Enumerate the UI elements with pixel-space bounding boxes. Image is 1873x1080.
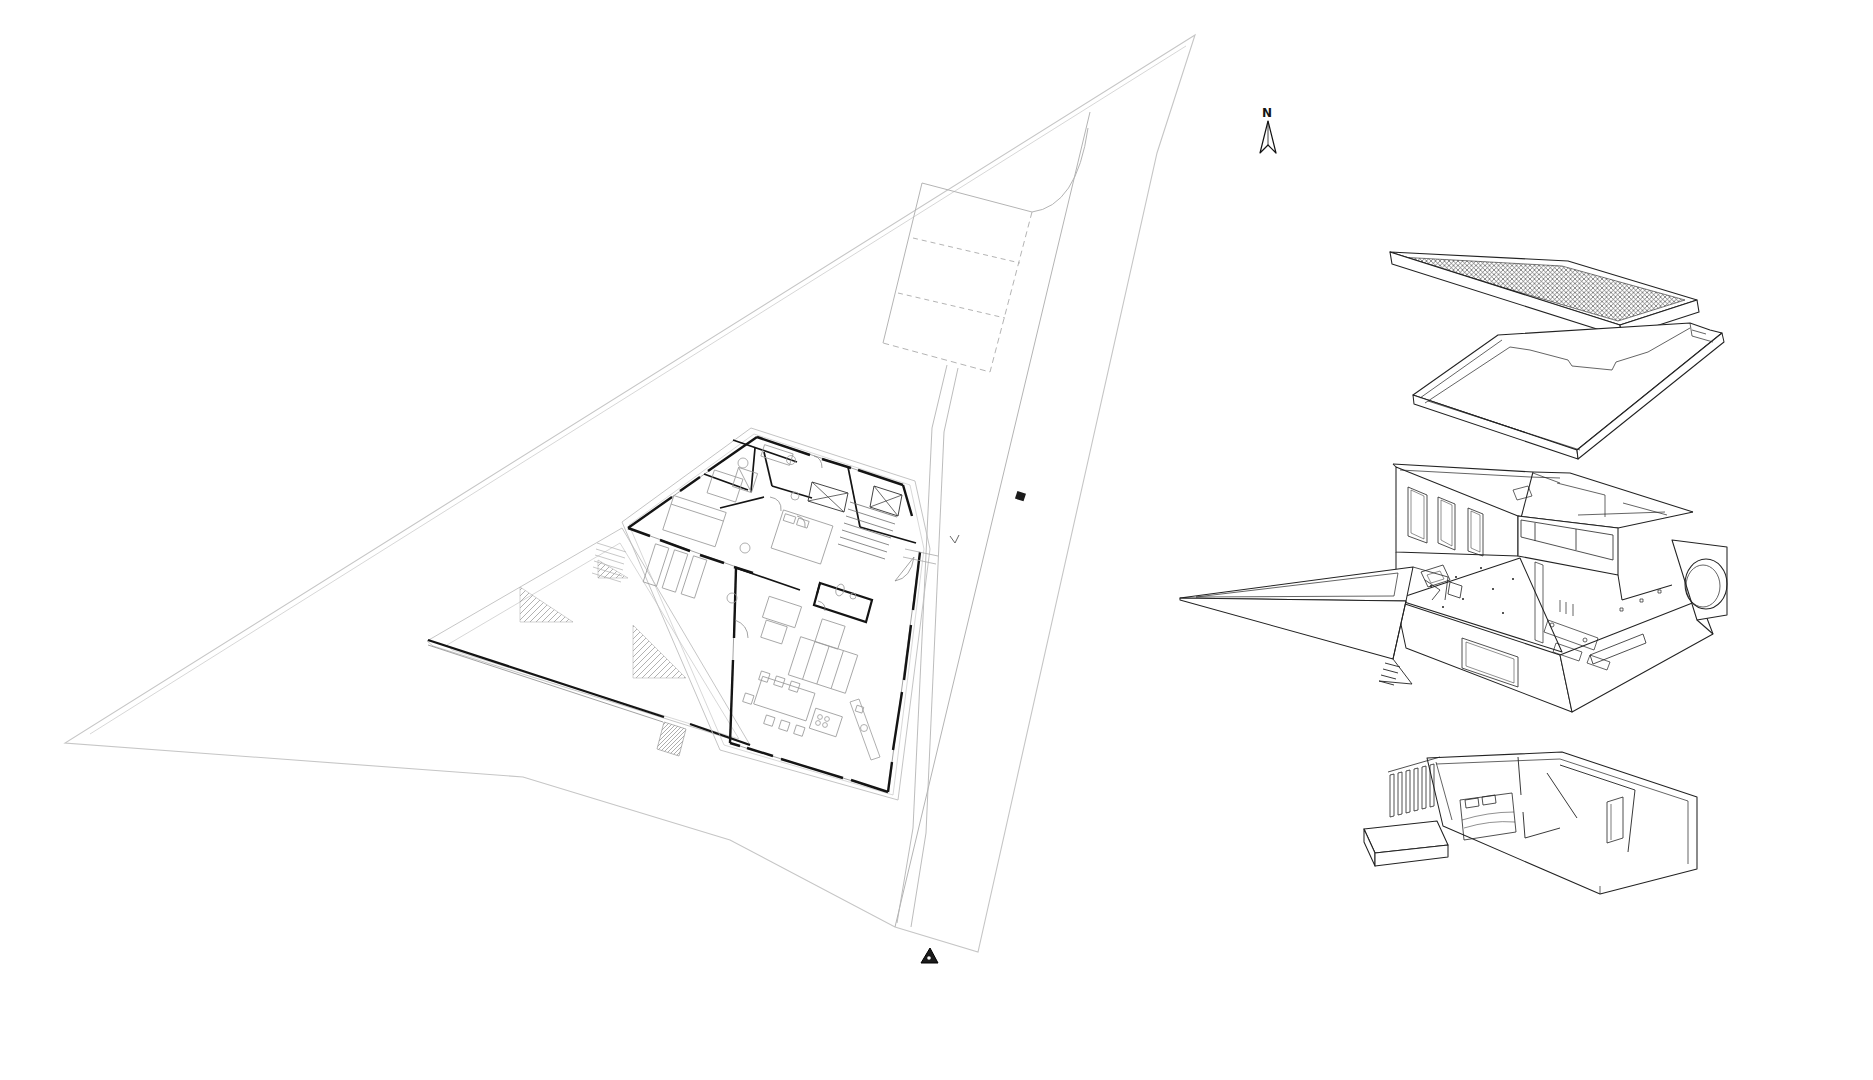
axon-roof-level	[1390, 252, 1699, 337]
driveway-edge-2	[911, 368, 958, 927]
basin-1	[738, 458, 748, 468]
parking-outline-dashed	[883, 212, 1032, 372]
axon-main-level	[1180, 464, 1727, 712]
axon-platform	[1364, 821, 1448, 866]
door-swings	[735, 456, 914, 638]
parking-divider-2	[898, 293, 1005, 318]
driveway-edge-1	[897, 365, 947, 923]
slope-chevron	[950, 535, 959, 543]
axon-entry-stairs	[1379, 659, 1412, 685]
stair	[808, 482, 902, 559]
furniture	[663, 445, 880, 760]
north-arrow: N	[1260, 106, 1276, 153]
gate-marker	[1015, 491, 1026, 501]
bed-1	[663, 496, 726, 547]
parking-outline-solid	[883, 183, 1032, 343]
dining-table	[754, 676, 815, 721]
parking-divider-1	[913, 238, 1020, 263]
terrace-wall-long	[428, 640, 664, 717]
slope-hatch-3	[520, 587, 573, 622]
dining-chairs	[743, 671, 805, 736]
site-boundary-lines	[65, 35, 1195, 952]
terrace-wall-short	[690, 724, 750, 745]
terrace-wall-shadow	[428, 645, 663, 722]
site-boundary	[65, 35, 1195, 952]
access-road	[895, 112, 1090, 927]
axon-lower-level	[1364, 752, 1697, 894]
lawn-outline	[427, 528, 750, 745]
drawing-canvas: N	[0, 0, 1873, 1080]
exploded-axonometric	[1180, 252, 1727, 894]
road-left-edge	[895, 112, 1090, 927]
entrance-marker	[921, 948, 938, 963]
north-label: N	[1262, 106, 1272, 120]
terrace-steps	[657, 722, 686, 756]
lawn-outline-inner	[447, 543, 739, 739]
axon-roof-slab-level	[1413, 323, 1724, 459]
square-table	[815, 619, 845, 649]
garden-terrace	[427, 528, 750, 756]
kitchen-counter	[850, 699, 880, 760]
parking-stalls	[883, 183, 1032, 372]
architectural-drawing-sheet: N	[0, 0, 1873, 1080]
kitchen-sink	[861, 725, 868, 732]
planter-2	[740, 543, 750, 553]
site-plan	[65, 35, 1195, 963]
shutter-panels	[643, 544, 707, 598]
slope-hatch-1	[598, 560, 628, 578]
road-entry-curve	[1032, 128, 1088, 212]
sofa-seat	[762, 596, 801, 627]
